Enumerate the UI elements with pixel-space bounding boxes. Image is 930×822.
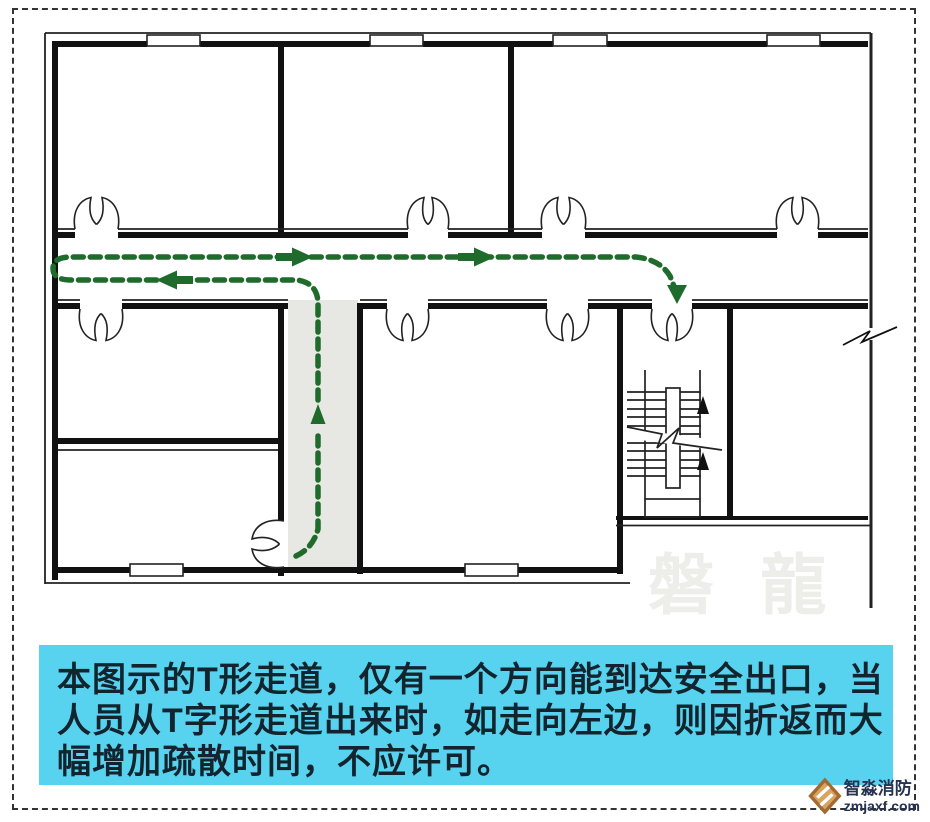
- door-symbol-stem-exit: [252, 520, 284, 567]
- door-symbol: [541, 198, 585, 230]
- fire-brand-diamond-icon: [808, 774, 842, 818]
- caption-box: 本图示的T形走道，仅有一个方向能到达安全出口，当 人员从T字形走道出来时，如走向…: [39, 645, 893, 785]
- route-arrow-left: [156, 271, 193, 290]
- caption-line-2: 人员从T字形走道出来时，如走向左边，则因折返而大: [57, 701, 893, 742]
- brand-url: zmjaxf.com: [844, 799, 920, 813]
- door-symbol: [407, 198, 448, 230]
- route-arrow-right: [458, 248, 495, 267]
- door-symbol: [546, 309, 588, 341]
- screenshot-frame: 磐 龍 本图示的T形走道，仅有一个方向能到达安全出口，当 人员从T字形走道出来时…: [0, 0, 930, 822]
- caption-line-3: 幅增加疏散时间，不应许可。: [57, 742, 893, 783]
- watermark-text: 磐 龍: [648, 532, 888, 628]
- door-symbols: [74, 198, 818, 568]
- t-corridor-stem: [288, 300, 358, 567]
- walls-thin: [58, 229, 871, 526]
- route-arrow-right: [276, 248, 313, 267]
- stair-direction-arrow: [697, 396, 709, 414]
- walls-thick: [52, 41, 868, 580]
- door-symbol: [74, 198, 118, 230]
- evacuation-route: [53, 248, 687, 557]
- door-symbol: [386, 309, 428, 341]
- brand-logo: 智淼消防 zmjaxf.com: [808, 774, 920, 818]
- door-symbol: [79, 309, 122, 341]
- door-symbol: [776, 198, 818, 230]
- route-arrow-down: [667, 285, 687, 304]
- caption-line-1: 本图示的T形走道，仅有一个方向能到达安全出口，当: [57, 660, 893, 701]
- brand-title: 智淼消防: [844, 780, 920, 797]
- staircase: [626, 370, 722, 517]
- stair-direction-arrow: [697, 452, 709, 470]
- door-symbol-stairwell: [651, 309, 692, 341]
